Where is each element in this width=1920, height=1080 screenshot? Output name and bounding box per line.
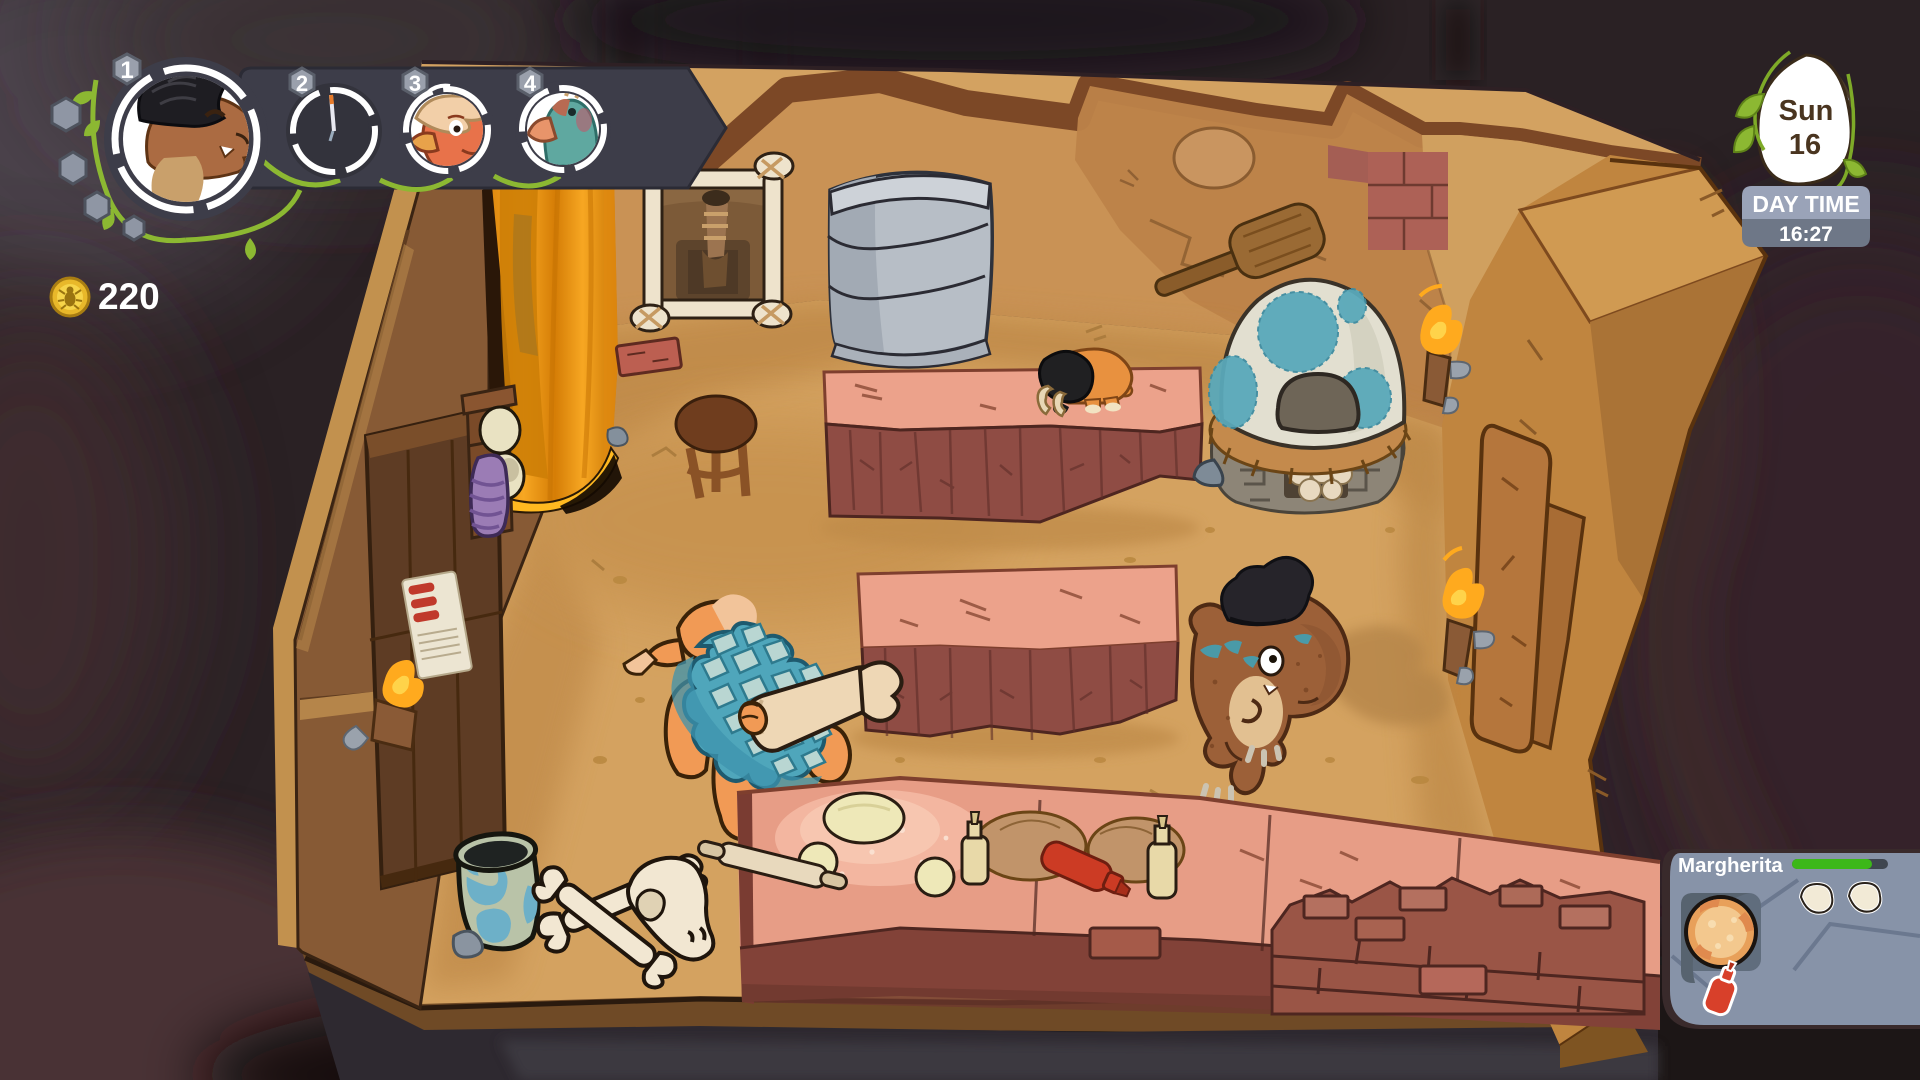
svg-text:16: 16 xyxy=(1789,129,1821,161)
svg-text:3: 3 xyxy=(409,71,421,96)
svg-text:Margherita: Margherita xyxy=(1678,854,1783,877)
svg-text:16:27: 16:27 xyxy=(1779,223,1833,246)
svg-text:Sun: Sun xyxy=(1779,95,1834,127)
svg-text:DAY TIME: DAY TIME xyxy=(1752,191,1859,217)
svg-text:220: 220 xyxy=(98,276,160,317)
svg-text:1: 1 xyxy=(120,57,133,84)
svg-text:4: 4 xyxy=(524,71,537,96)
svg-text:2: 2 xyxy=(296,71,308,96)
